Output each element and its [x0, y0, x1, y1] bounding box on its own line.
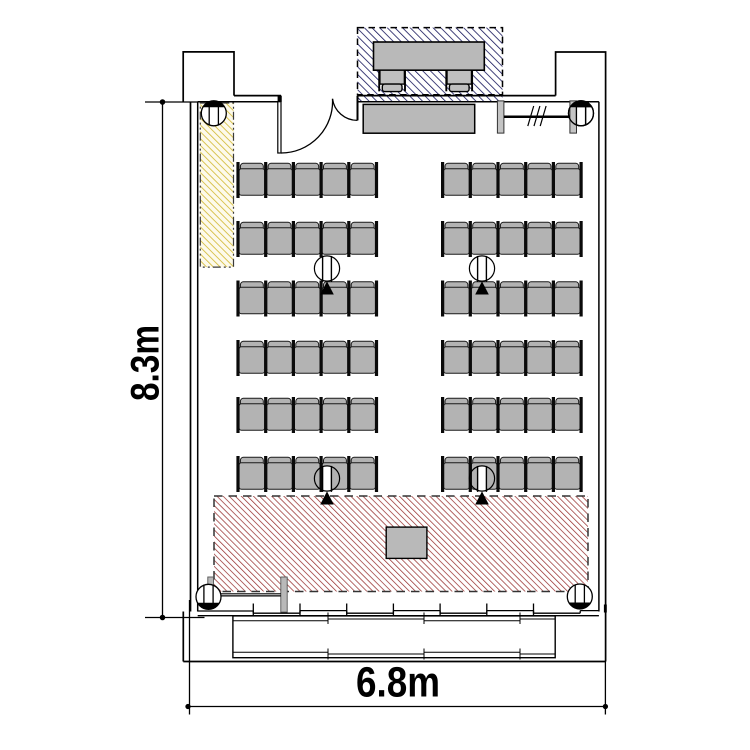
svg-text:8.3m: 8.3m: [124, 325, 168, 401]
svg-text:6.8m: 6.8m: [356, 660, 440, 707]
